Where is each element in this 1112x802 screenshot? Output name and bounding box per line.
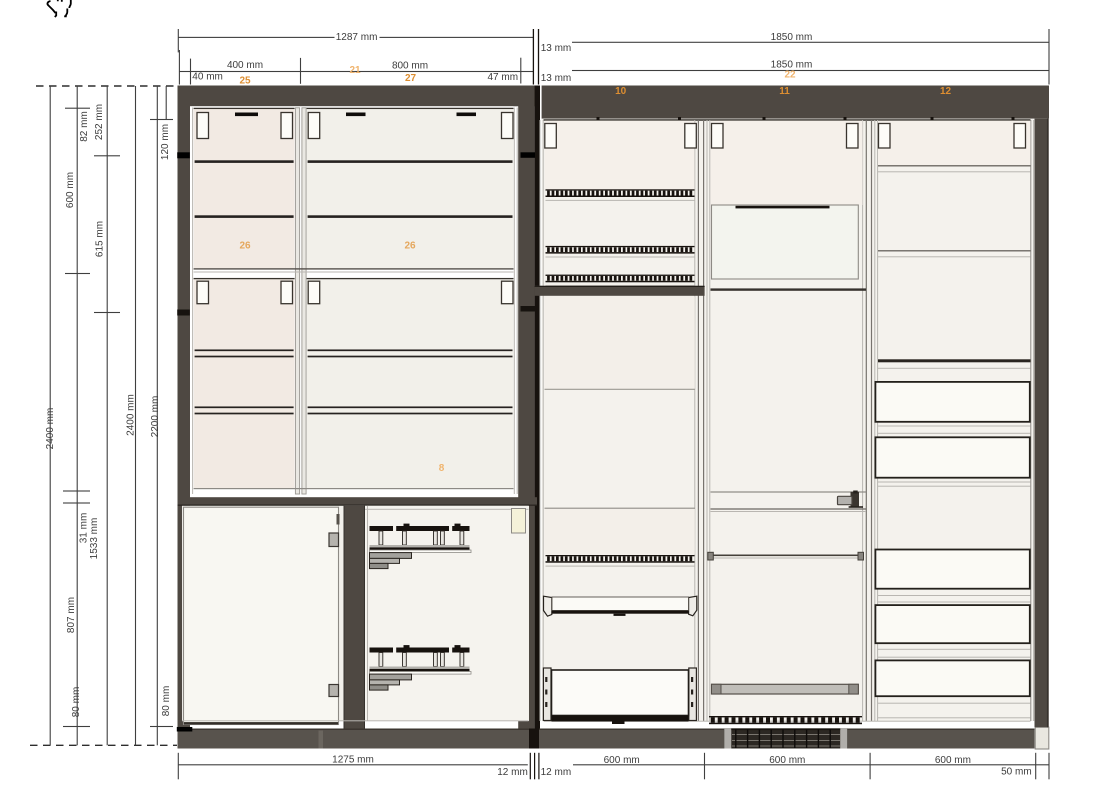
svg-text:22: 22 [784, 70, 796, 81]
svg-text:600 mm: 600 mm [935, 755, 971, 766]
svg-text:40 mm: 40 mm [192, 72, 223, 83]
svg-text:600 mm: 600 mm [769, 755, 805, 766]
svg-text:26: 26 [239, 241, 251, 252]
svg-text:1287 mm: 1287 mm [336, 32, 378, 43]
svg-text:13 mm: 13 mm [541, 43, 572, 54]
svg-text:2400 mm: 2400 mm [45, 408, 56, 450]
svg-text:12 mm: 12 mm [497, 767, 528, 778]
svg-text:11: 11 [779, 86, 790, 97]
svg-text:12: 12 [940, 86, 952, 97]
svg-text:12 mm: 12 mm [541, 767, 572, 778]
svg-text:13 mm: 13 mm [541, 73, 572, 84]
svg-text:1275 mm: 1275 mm [332, 755, 374, 766]
svg-text:82 mm: 82 mm [79, 111, 90, 142]
svg-text:800 mm: 800 mm [392, 61, 428, 72]
svg-text:120 mm: 120 mm [160, 124, 171, 160]
svg-text:27: 27 [405, 73, 417, 84]
svg-text:80 mm: 80 mm [161, 686, 172, 717]
svg-text:25: 25 [239, 76, 251, 87]
svg-text:31 mm: 31 mm [79, 513, 90, 544]
svg-text:252 mm: 252 mm [94, 104, 105, 140]
svg-text:400 mm: 400 mm [227, 60, 263, 71]
svg-text:600 mm: 600 mm [65, 172, 76, 208]
svg-text:10: 10 [615, 86, 627, 97]
svg-text:1850 mm: 1850 mm [771, 32, 813, 43]
svg-text:615 mm: 615 mm [95, 221, 106, 257]
svg-text:26: 26 [404, 241, 416, 252]
svg-text:2400 mm: 2400 mm [126, 394, 137, 436]
svg-text:80 mm: 80 mm [71, 687, 82, 718]
svg-text:1533 mm: 1533 mm [89, 518, 100, 560]
svg-text:2200 mm: 2200 mm [150, 396, 161, 438]
svg-text:21: 21 [349, 65, 361, 76]
svg-text:600 mm: 600 mm [604, 755, 640, 766]
svg-text:807 mm: 807 mm [66, 597, 77, 633]
svg-text:50 mm: 50 mm [1001, 767, 1032, 778]
svg-text:8: 8 [439, 463, 445, 474]
svg-text:47 mm: 47 mm [488, 72, 519, 83]
